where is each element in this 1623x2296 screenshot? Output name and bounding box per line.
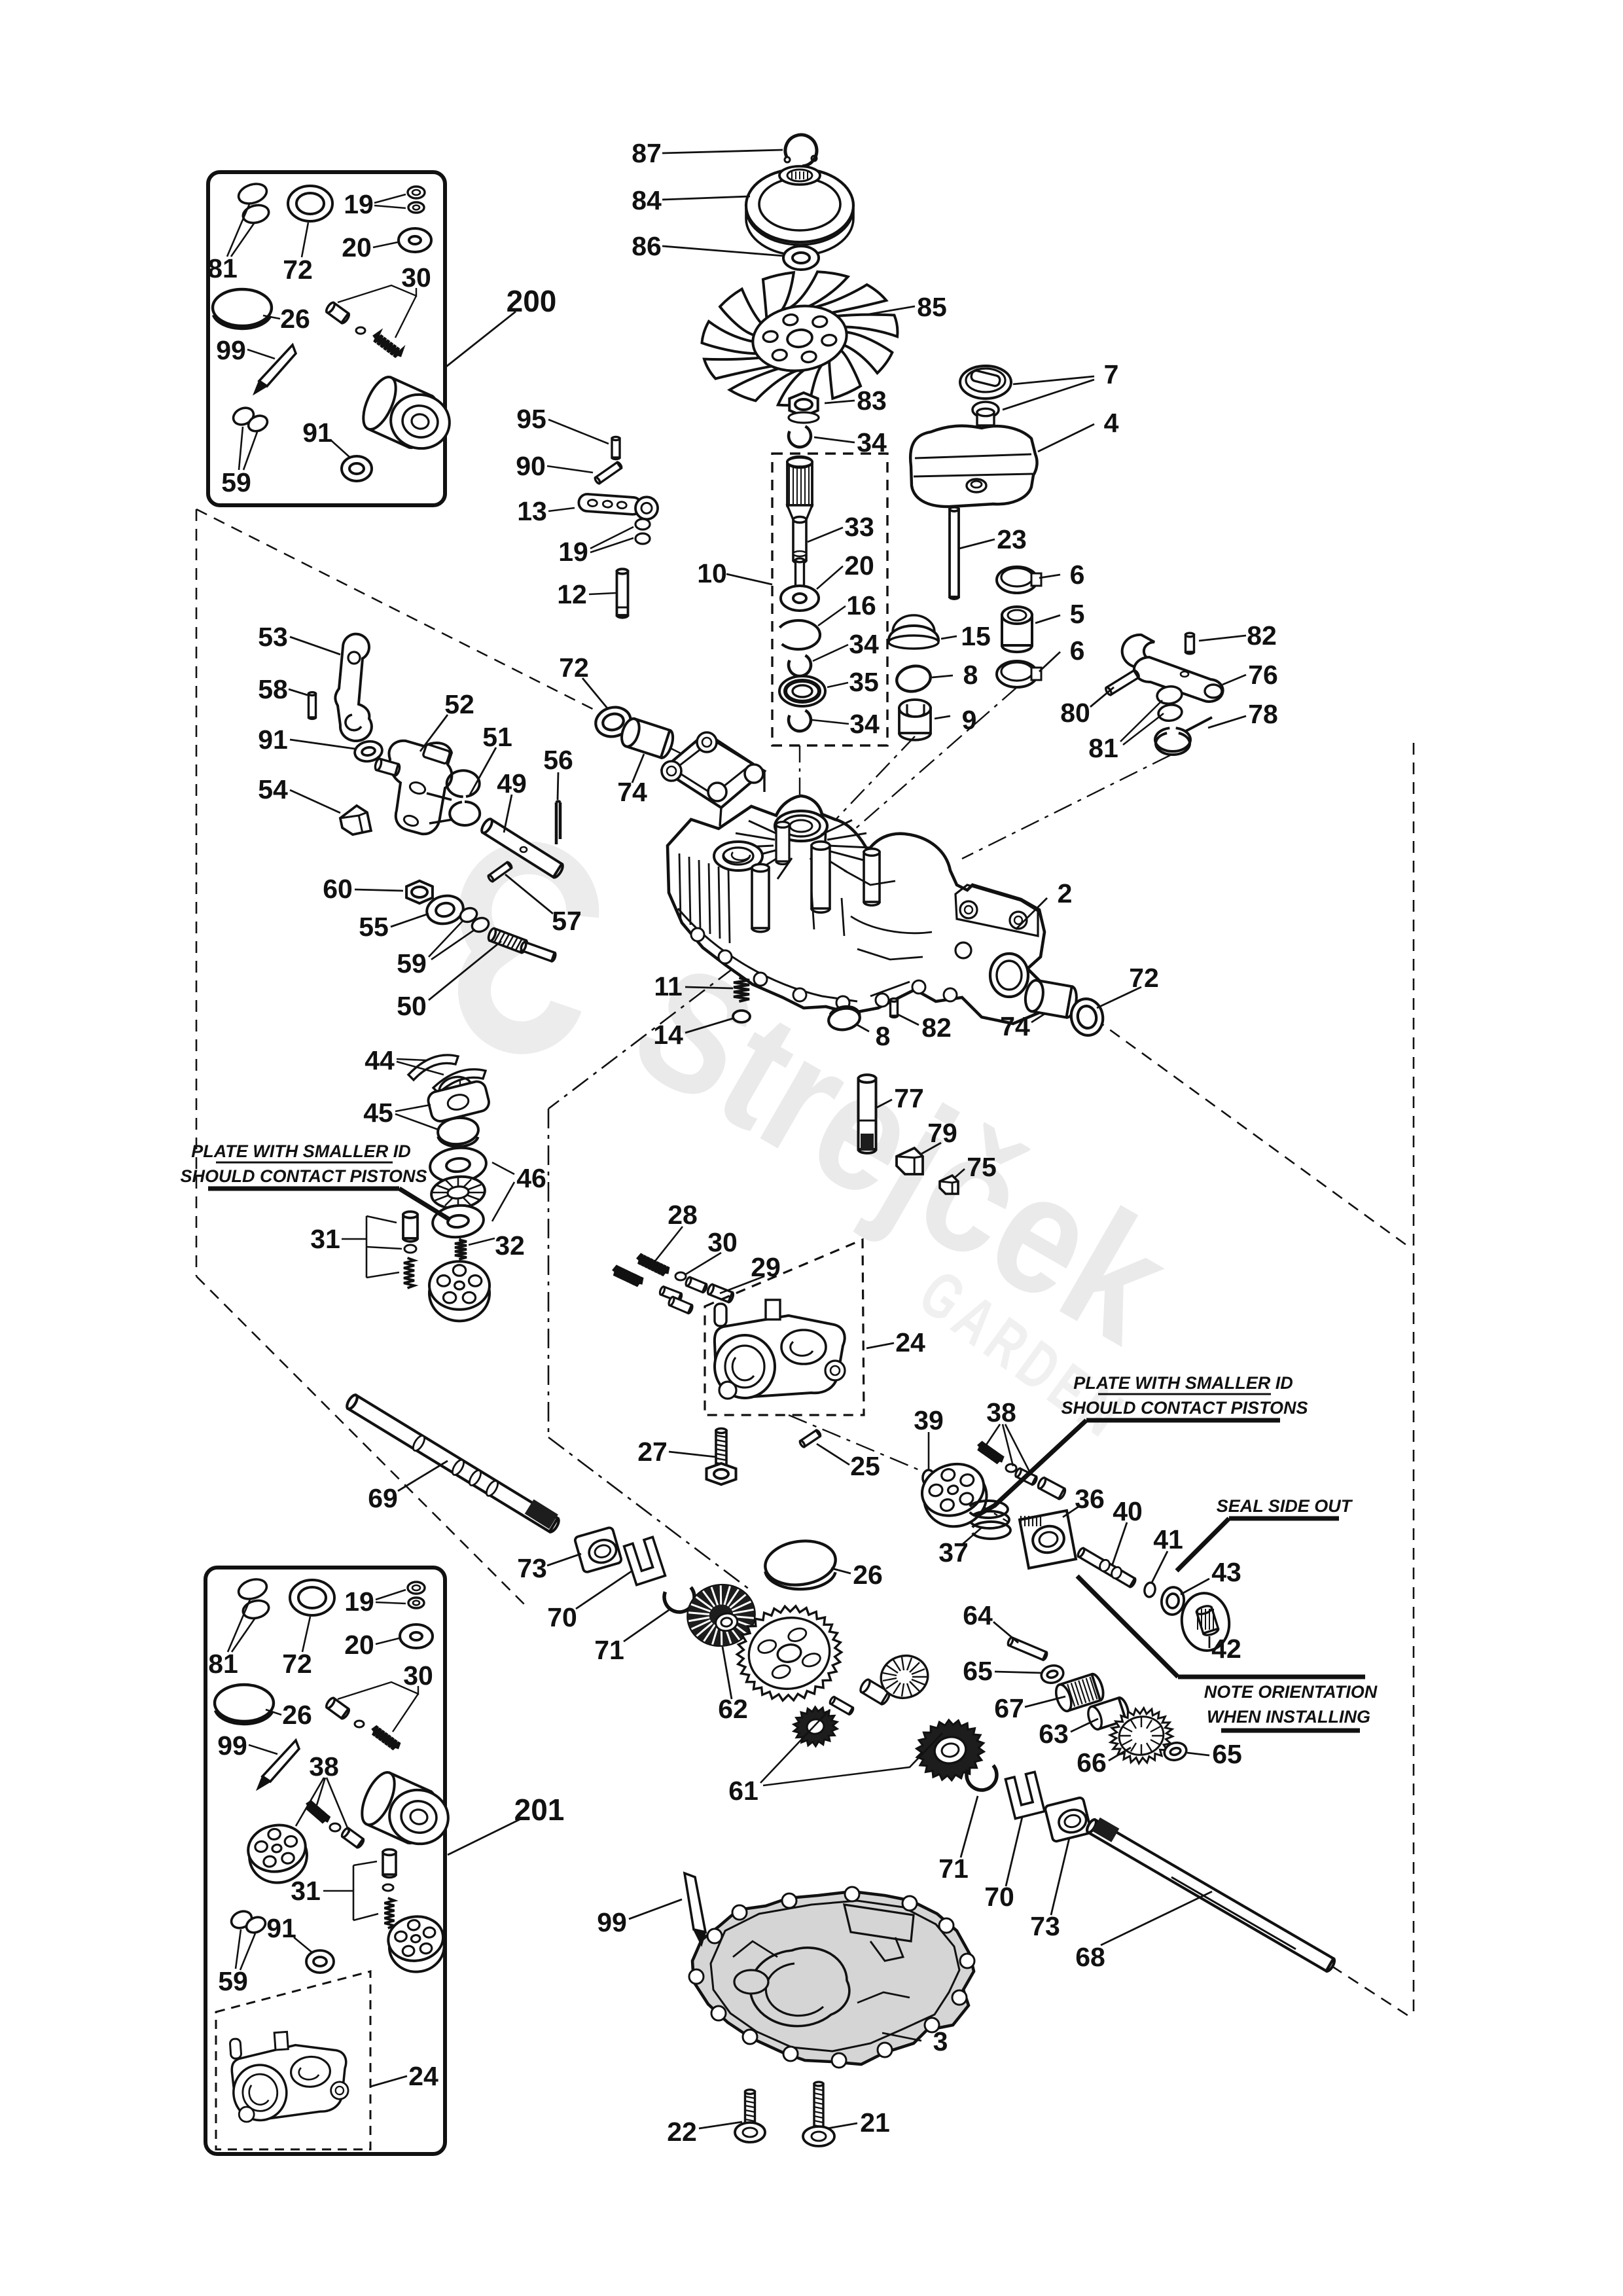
svg-text:SHOULD CONTACT PISTONS: SHOULD CONTACT PISTONS [180, 1166, 427, 1186]
svg-text:70: 70 [547, 1602, 577, 1632]
svg-text:52: 52 [444, 689, 474, 719]
svg-text:NOTE ORIENTATION: NOTE ORIENTATION [1204, 1682, 1378, 1702]
svg-text:41: 41 [1153, 1524, 1183, 1554]
svg-text:14: 14 [653, 1020, 683, 1050]
svg-text:19: 19 [344, 1587, 374, 1617]
svg-text:7: 7 [1104, 359, 1119, 389]
svg-text:75: 75 [967, 1152, 997, 1182]
svg-text:30: 30 [707, 1227, 738, 1257]
svg-text:24: 24 [408, 2061, 438, 2091]
svg-text:72: 72 [559, 653, 589, 683]
svg-text:4: 4 [1104, 408, 1119, 438]
svg-text:25: 25 [850, 1451, 880, 1481]
svg-text:76: 76 [1248, 660, 1278, 690]
svg-text:21: 21 [860, 2108, 890, 2138]
svg-text:43: 43 [1211, 1557, 1241, 1587]
svg-text:34: 34 [849, 709, 880, 739]
svg-text:77: 77 [894, 1083, 924, 1113]
svg-text:72: 72 [283, 255, 313, 285]
svg-text:31: 31 [310, 1224, 340, 1254]
svg-text:80: 80 [1060, 698, 1090, 728]
svg-text:95: 95 [516, 404, 546, 434]
svg-text:69: 69 [368, 1483, 398, 1513]
svg-text:85: 85 [917, 292, 947, 322]
svg-text:20: 20 [342, 232, 372, 262]
svg-text:42: 42 [1211, 1634, 1241, 1664]
svg-text:82: 82 [921, 1013, 952, 1043]
svg-text:20: 20 [844, 550, 874, 581]
svg-text:34: 34 [849, 629, 879, 659]
svg-text:5: 5 [1070, 599, 1085, 629]
svg-text:19: 19 [344, 189, 374, 219]
svg-text:53: 53 [258, 622, 288, 652]
svg-text:38: 38 [309, 1751, 339, 1782]
svg-text:44: 44 [365, 1045, 395, 1075]
svg-text:81: 81 [208, 1649, 238, 1679]
svg-text:57: 57 [552, 906, 582, 936]
svg-text:99: 99 [216, 335, 246, 365]
svg-text:33: 33 [844, 512, 874, 542]
svg-text:79: 79 [927, 1118, 957, 1148]
svg-text:24: 24 [895, 1327, 925, 1357]
svg-text:WHEN INSTALLING: WHEN INSTALLING [1207, 1707, 1370, 1727]
svg-text:39: 39 [914, 1405, 944, 1435]
svg-text:46: 46 [516, 1163, 546, 1193]
svg-text:31: 31 [291, 1876, 321, 1906]
svg-text:73: 73 [517, 1553, 547, 1583]
svg-text:45: 45 [363, 1098, 393, 1128]
svg-text:68: 68 [1075, 1942, 1105, 1972]
svg-text:200: 200 [507, 284, 557, 318]
svg-text:71: 71 [938, 1854, 969, 1884]
svg-text:38: 38 [986, 1397, 1016, 1427]
svg-text:32: 32 [495, 1230, 525, 1261]
svg-text:86: 86 [632, 231, 662, 261]
svg-text:91: 91 [258, 725, 288, 755]
svg-text:91: 91 [302, 418, 332, 448]
svg-text:28: 28 [668, 1200, 698, 1230]
svg-text:62: 62 [718, 1694, 748, 1724]
svg-text:30: 30 [403, 1660, 433, 1691]
svg-text:26: 26 [280, 304, 310, 334]
svg-text:16: 16 [846, 590, 876, 620]
svg-text:11: 11 [654, 971, 682, 1001]
svg-text:82: 82 [1247, 620, 1277, 651]
svg-text:84: 84 [632, 185, 662, 215]
svg-text:SEAL SIDE OUT: SEAL SIDE OUT [1217, 1496, 1353, 1516]
svg-text:87: 87 [632, 138, 662, 168]
svg-text:13: 13 [517, 496, 547, 526]
svg-text:65: 65 [963, 1656, 993, 1686]
svg-text:40: 40 [1113, 1496, 1143, 1526]
svg-text:8: 8 [876, 1021, 891, 1051]
svg-text:3: 3 [933, 2026, 948, 2056]
svg-text:72: 72 [282, 1649, 312, 1679]
svg-text:72: 72 [1129, 963, 1159, 993]
svg-text:20: 20 [344, 1630, 374, 1660]
svg-text:67: 67 [994, 1693, 1024, 1723]
svg-text:71: 71 [594, 1635, 624, 1665]
svg-text:63: 63 [1039, 1719, 1069, 1749]
svg-text:8: 8 [963, 660, 978, 690]
svg-text:15: 15 [961, 621, 991, 651]
svg-text:9: 9 [962, 705, 977, 735]
svg-text:12: 12 [557, 579, 587, 609]
svg-text:201: 201 [514, 1793, 565, 1827]
svg-text:10: 10 [697, 558, 727, 588]
svg-text:81: 81 [207, 253, 238, 283]
svg-text:91: 91 [266, 1913, 296, 1943]
svg-text:6: 6 [1070, 636, 1085, 666]
svg-text:70: 70 [984, 1882, 1014, 1912]
svg-text:73: 73 [1030, 1911, 1060, 1941]
svg-text:99: 99 [597, 1907, 627, 1937]
svg-text:26: 26 [282, 1700, 312, 1730]
svg-text:35: 35 [849, 667, 879, 697]
svg-text:66: 66 [1077, 1748, 1107, 1778]
svg-text:36: 36 [1075, 1484, 1105, 1514]
svg-text:90: 90 [516, 451, 546, 481]
svg-text:56: 56 [543, 745, 573, 775]
svg-text:60: 60 [323, 874, 353, 904]
svg-text:83: 83 [857, 386, 887, 416]
svg-text:6: 6 [1070, 560, 1085, 590]
svg-text:26: 26 [853, 1560, 883, 1590]
svg-text:59: 59 [221, 467, 251, 497]
svg-text:37: 37 [938, 1537, 969, 1568]
svg-text:22: 22 [667, 2117, 697, 2147]
svg-text:SHOULD CONTACT PISTONS: SHOULD CONTACT PISTONS [1061, 1398, 1308, 1418]
svg-text:99: 99 [217, 1731, 247, 1761]
svg-text:27: 27 [637, 1437, 668, 1467]
svg-text:54: 54 [258, 774, 288, 804]
svg-text:59: 59 [218, 1966, 248, 1996]
svg-text:81: 81 [1088, 733, 1118, 763]
svg-text:65: 65 [1212, 1739, 1242, 1769]
svg-text:55: 55 [359, 912, 389, 942]
svg-text:74: 74 [1000, 1011, 1030, 1041]
svg-text:29: 29 [751, 1252, 781, 1282]
svg-text:74: 74 [617, 777, 647, 807]
svg-text:23: 23 [997, 524, 1027, 554]
svg-text:61: 61 [728, 1776, 758, 1806]
svg-text:59: 59 [397, 948, 427, 978]
svg-text:50: 50 [397, 991, 427, 1021]
svg-text:2: 2 [1058, 878, 1073, 908]
svg-text:78: 78 [1248, 699, 1278, 729]
svg-text:19: 19 [558, 537, 588, 567]
svg-text:30: 30 [401, 262, 431, 293]
svg-text:PLATE WITH SMALLER ID: PLATE WITH SMALLER ID [1073, 1373, 1293, 1393]
svg-text:PLATE WITH SMALLER ID: PLATE WITH SMALLER ID [191, 1141, 410, 1161]
svg-text:58: 58 [258, 674, 288, 704]
svg-text:64: 64 [963, 1600, 993, 1630]
svg-text:49: 49 [497, 768, 527, 798]
svg-text:51: 51 [482, 722, 512, 752]
